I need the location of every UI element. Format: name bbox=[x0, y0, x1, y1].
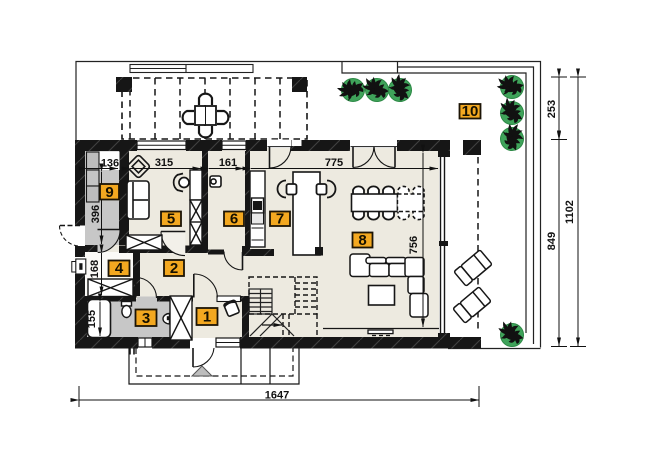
svg-text:1647: 1647 bbox=[265, 390, 289, 402]
svg-text:168: 168 bbox=[89, 260, 101, 278]
svg-text:161: 161 bbox=[219, 157, 237, 169]
svg-text:155: 155 bbox=[86, 310, 98, 328]
svg-text:3: 3 bbox=[142, 310, 150, 327]
svg-text:4: 4 bbox=[115, 260, 124, 277]
svg-text:315: 315 bbox=[155, 157, 173, 169]
svg-text:5: 5 bbox=[167, 211, 175, 228]
svg-text:136: 136 bbox=[101, 158, 119, 170]
svg-text:6: 6 bbox=[230, 211, 238, 228]
svg-text:849: 849 bbox=[546, 232, 558, 250]
svg-text:396: 396 bbox=[90, 205, 102, 223]
svg-text:8: 8 bbox=[358, 232, 366, 249]
svg-text:253: 253 bbox=[546, 100, 558, 118]
svg-text:1102: 1102 bbox=[564, 200, 576, 224]
svg-text:1: 1 bbox=[203, 309, 211, 326]
svg-text:756: 756 bbox=[408, 236, 420, 254]
svg-text:10: 10 bbox=[462, 103, 479, 120]
svg-text:9: 9 bbox=[105, 184, 113, 201]
svg-text:7: 7 bbox=[276, 211, 284, 228]
svg-text:2: 2 bbox=[170, 260, 178, 277]
svg-text:775: 775 bbox=[325, 157, 343, 169]
